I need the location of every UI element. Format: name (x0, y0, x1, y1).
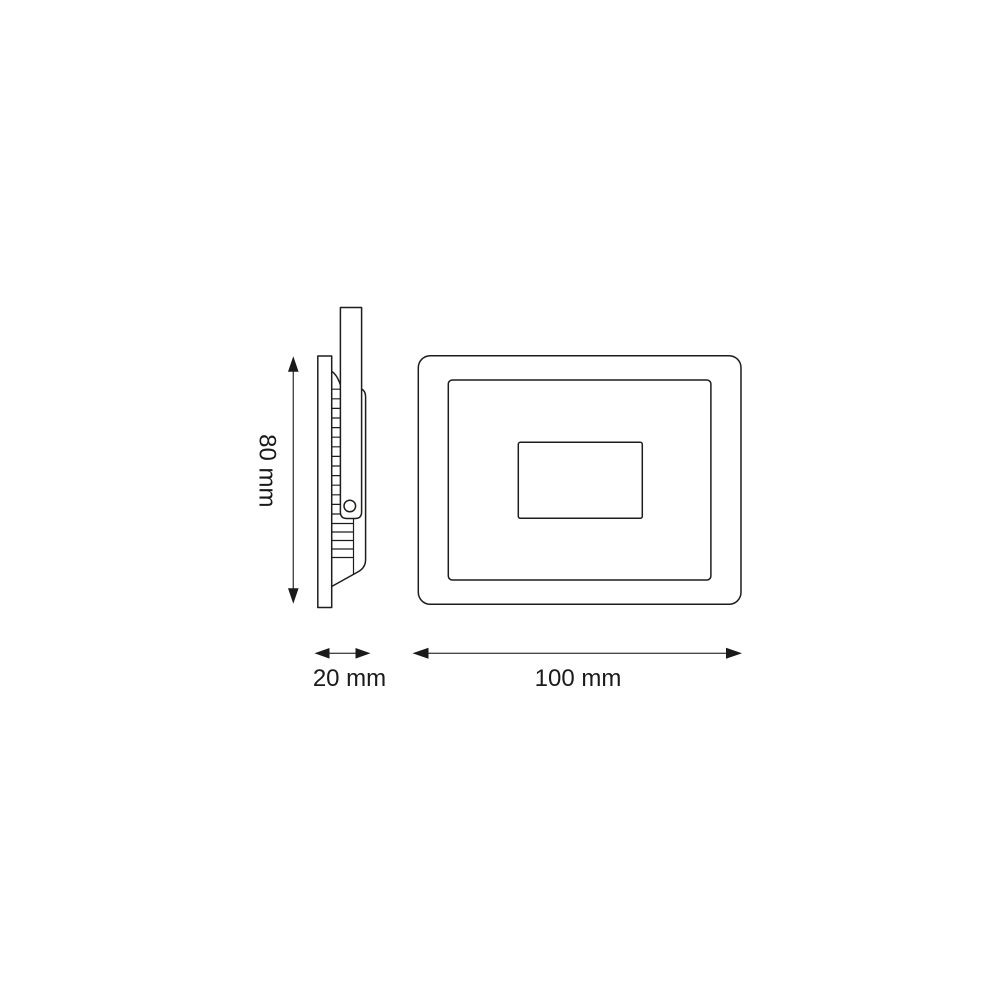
heatsink-top-slope (332, 372, 341, 385)
bracket-pivot-screw-icon (344, 500, 356, 512)
dimension-height: 80 mm (254, 356, 299, 603)
dimension-depth: 20 mm (313, 648, 386, 692)
dimension-width: 100 mm (413, 648, 743, 692)
mounting-bracket (340, 308, 361, 519)
drawing-canvas: 80 mm 20 mm 100 mm (0, 0, 1000, 1000)
front-view (418, 356, 741, 605)
floodlight-dimension-drawing: 80 mm 20 mm 100 mm (0, 0, 1000, 1000)
dimension-depth-label: 20 mm (313, 665, 386, 692)
housing-outer-frame (418, 356, 741, 605)
dimension-height-label: 80 mm (254, 434, 281, 507)
dimension-width-label: 100 mm (535, 665, 622, 692)
housing-inner-frame (448, 380, 711, 580)
heatsink-fins-upper (332, 389, 341, 514)
heatsink-fins-lower (332, 519, 354, 575)
led-panel (518, 442, 642, 518)
side-view (318, 308, 366, 608)
front-plate (318, 356, 332, 608)
